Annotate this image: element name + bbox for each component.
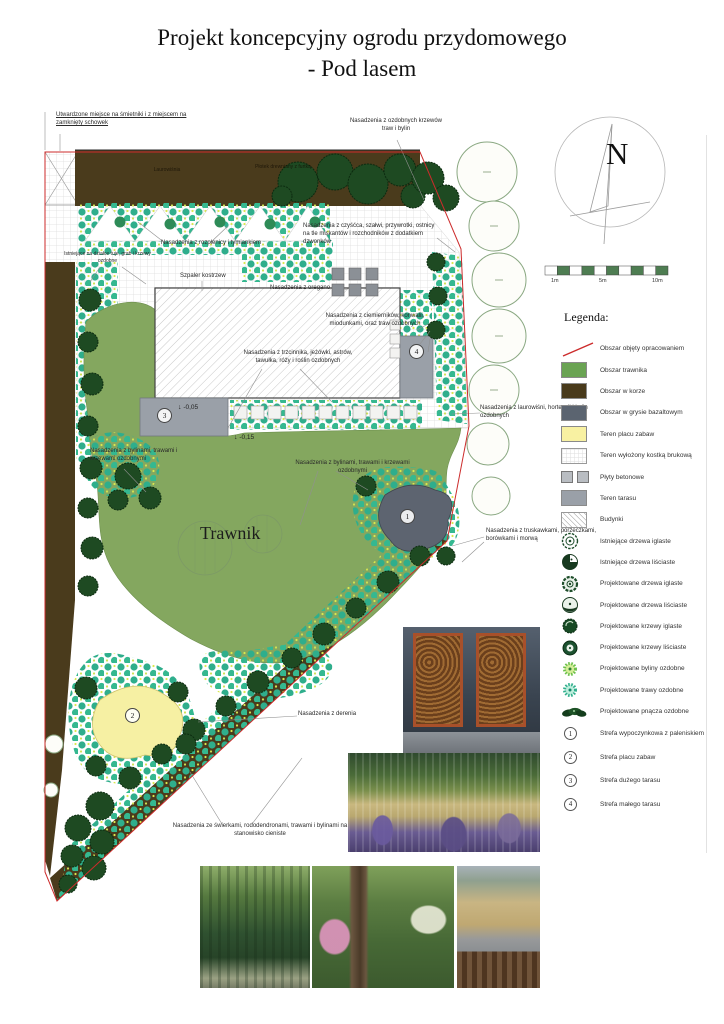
photo-ground [403, 732, 540, 753]
proposed-deciduous-shrub-icon [561, 639, 579, 657]
legend-item: 4 Strefa małego tarasu [556, 793, 724, 817]
annotation-reed-grass-echinacea: Nasadzenia z trzcinnika, jeżówki, astrów… [232, 350, 364, 366]
terrace-swatch [561, 490, 587, 506]
legend-item: Istniejące drzewa iglaste [556, 531, 724, 552]
page-title-line1: Projekt koncepcyjny ogrodu przydomowego [0, 22, 724, 53]
zone-4-badge: 4 [564, 798, 577, 811]
house-building [155, 288, 400, 398]
legend-item-label: Obszar trawnika [600, 367, 724, 374]
ornamental-perennials-icon [561, 660, 579, 678]
legend-item-label: Projektowane trawy ozdobne [600, 687, 724, 694]
legend-item-label: Projektowane drzewa liściaste [600, 602, 724, 609]
legend-item-label: Projektowane krzewy iglaste [600, 623, 724, 630]
level-arrow-icon: ↓ [178, 404, 182, 411]
legend-item-label: Obszar w grysie bazaltowym [600, 409, 724, 416]
inspiration-photo-flower-bed [312, 866, 454, 988]
annotation-perennials-center: Nasadzenia z bylinami, trawami i krzewam… [295, 460, 410, 476]
legend-item: Obszar trawnika [556, 359, 724, 380]
level-arrow-icon: ↓ [234, 434, 238, 441]
inspiration-photo-grass-pond [457, 866, 540, 988]
legend-item-label: Istniejące drzewa iglaste [600, 538, 724, 545]
legend-item: Projektowane drzewa iglaste [556, 573, 724, 594]
log-panel [476, 633, 527, 726]
annotation-fountain-grass-thyme: Nasadzenia z rozplenicy i tymiankiem [126, 240, 296, 248]
legend-item: Projektowane drzewa liściaste [556, 594, 724, 615]
playground-swatch [561, 426, 587, 442]
annotation-laurel-strip: Laurowiśnia [132, 167, 202, 174]
legend-item: Teren wyłożony kostką brukową [556, 445, 724, 466]
elevation-value: -0,05 [183, 404, 198, 411]
proposed-conifer-shrub-icon [561, 617, 579, 635]
legend-item-label: Obszar objęty opracowaniem [600, 345, 724, 352]
legend-item: Obszar w korze [556, 381, 724, 402]
legend-item-label: Strefa placu zabaw [600, 754, 724, 761]
annotation-stachys-salvia: Nasadzenia z czyśćca, szałwi, przywrotki… [303, 223, 435, 246]
legend-item-label: Obszar w korze [600, 388, 724, 395]
scale-bar [545, 266, 668, 275]
basalt-swatch [561, 405, 587, 421]
inspiration-photo-perennial-bed [348, 753, 540, 852]
north-letter: N [606, 136, 628, 172]
annotation-shade-plantings: Nasadzenia ze świerkami, rododendronami,… [160, 823, 360, 839]
zone-number: 4 [415, 347, 419, 356]
scale-tick-5m: 5m [599, 278, 607, 284]
annotation-bins-area: Utwardzone miejsce na śmietniki i z miej… [56, 112, 206, 128]
legend-item: Projektowane pnącza ozdobne [556, 701, 724, 722]
legend-item-label: Projektowane pnącza ozdobne [600, 708, 724, 715]
legend-item-label: Teren wyłożony kostką brukową [600, 452, 724, 459]
inspiration-photo-log-wall [403, 627, 540, 753]
legend-item: Teren tarasu [556, 488, 724, 509]
proposed-deciduous-tree-icon [561, 596, 579, 614]
legend-item: Budynki [556, 509, 724, 530]
ornamental-grasses-icon [561, 681, 579, 699]
annotation-hellebores: Nasadzenia z ciemierników, konwalii, mio… [316, 313, 434, 329]
zone-marker-2: 2 [125, 708, 140, 723]
legend-item: Istniejące drzewa liściaste [556, 552, 724, 573]
zone-number: 3 [163, 411, 167, 420]
legend-item-label: Płyty betonowe [600, 474, 724, 481]
elevation-mark-1: ↓ -0,05 [178, 404, 198, 411]
annotation-oregano: Nasadzenia z oregano [270, 285, 348, 293]
legend-item: Projektowane krzewy liściaste [556, 637, 724, 658]
plan-sheet: Projekt koncepcyjny ogrodu przydomowego … [0, 0, 724, 1024]
concrete-slab-swatch [577, 471, 589, 483]
legend-item: Projektowane byliny ozdobne [556, 658, 724, 679]
zone-number: 2 [131, 711, 135, 720]
page-title-line2: - Pod lasem [0, 53, 724, 84]
lawn-swatch [561, 362, 587, 378]
annotation-existing-plants: Istniejące na działce tuje, grab i krzew… [60, 251, 155, 264]
building-swatch [561, 512, 587, 528]
annotation-fescue-row: Szpaler kostrzew [180, 273, 260, 281]
inspiration-photo-garden-path [200, 866, 310, 988]
legend-item-label: Strefa dużego tarasu [600, 777, 724, 784]
zone-number: 1 [406, 512, 410, 521]
legend-item-label: Teren tarasu [600, 495, 724, 502]
legend-item-label: Projektowane byliny ozdobne [600, 665, 724, 672]
annotation-dogwood: Nasadzenia z derenia [298, 711, 388, 719]
legend-item: Płyty betonowe [556, 466, 724, 487]
scale-tick-1m: 1m [551, 278, 559, 284]
log-panel [413, 633, 464, 726]
ornamental-climbers-icon [561, 705, 587, 719]
existing-conifer-tree-icon [561, 532, 579, 550]
legend-item-label: Projektowane drzewa iglaste [600, 580, 724, 587]
annotation-ornamental-shrubs: Nasadzenia z ozdobnych krzewów traw i by… [344, 118, 448, 134]
legend-item: Obszar w grysie bazaltowym [556, 402, 724, 423]
legend-item: Teren placu zabaw [556, 424, 724, 445]
scale-tick-10m: 10m [652, 278, 663, 284]
bark-swatch [561, 383, 587, 399]
legend-item: 2 Strefa placu zabaw [556, 746, 724, 770]
legend-item: Projektowane krzewy iglaste [556, 616, 724, 637]
elevation-mark-2: ↓ -0,15 [234, 434, 254, 441]
proposed-conifer-tree-icon [561, 575, 579, 593]
pavers-swatch [561, 448, 587, 464]
existing-deciduous-tree-icon [561, 553, 579, 571]
legend-item: 3 Strefa dużego tarasu [556, 769, 724, 793]
legend-item-label: Projektowane krzewy liściaste [600, 644, 724, 651]
legend-item: 1 Strefa wypoczynkowa z paleniskiem [556, 722, 724, 746]
zone-3-badge: 3 [564, 774, 577, 787]
legend: Legenda: Obszar objęty opracowaniem Obsz… [556, 310, 724, 816]
boundary-line-swatch [561, 341, 595, 357]
legend-item: Projektowane trawy ozdobne [556, 680, 724, 701]
legend-item: Obszar objęty opracowaniem [556, 338, 724, 359]
zone-marker-3: 3 [157, 408, 172, 423]
elevation-value: -0,15 [239, 434, 254, 441]
zone-1-badge: 1 [564, 727, 577, 740]
legend-item-label: Budynki [600, 516, 724, 523]
legend-title: Legenda: [564, 310, 724, 325]
legend-item-label: Strefa wypoczynkowa z paleniskiem [600, 730, 724, 737]
zone-2-badge: 2 [564, 751, 577, 764]
legend-item-label: Teren placu zabaw [600, 431, 724, 438]
zone-marker-4: 4 [409, 344, 424, 359]
concrete-slab-swatch [561, 471, 573, 483]
annotation-wooden-fence: Płotek drewniany z furtką [238, 164, 328, 171]
zone-marker-1: 1 [400, 509, 415, 524]
page-title: Projekt koncepcyjny ogrodu przydomowego … [0, 22, 724, 84]
legend-item-label: Istniejące drzewa liściaste [600, 559, 724, 566]
legend-item-label: Strefa małego tarasu [600, 801, 724, 808]
annotation-perennials-left: Nasadzenia z bylinami, trawami i krzewam… [90, 448, 190, 464]
lawn-label: Trawnik [200, 523, 260, 544]
